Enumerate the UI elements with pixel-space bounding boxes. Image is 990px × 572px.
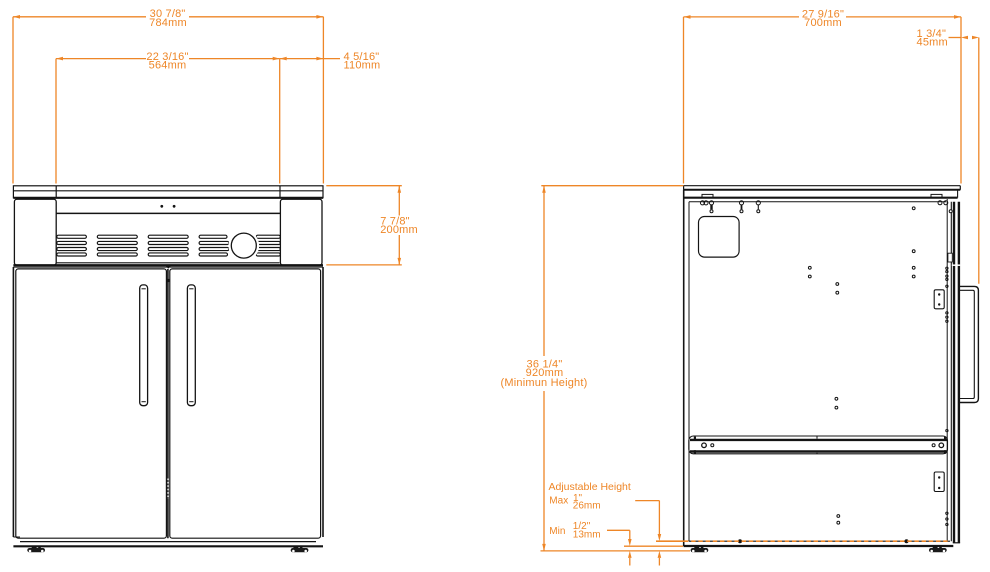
svg-text:700mm: 700mm (804, 17, 842, 29)
svg-text:45mm: 45mm (917, 37, 948, 49)
svg-text:110mm: 110mm (344, 59, 381, 71)
svg-text:Adjustable Height: Adjustable Height (549, 481, 631, 493)
svg-text:200mm: 200mm (380, 224, 418, 236)
svg-text:564mm: 564mm (149, 60, 187, 72)
svg-text:784mm: 784mm (149, 17, 187, 29)
svg-text:Max: Max (549, 496, 568, 507)
svg-text:(Minimun Height): (Minimun Height) (501, 377, 588, 389)
svg-text:26mm: 26mm (573, 500, 601, 511)
svg-text:Min: Min (549, 526, 565, 537)
svg-text:13mm: 13mm (573, 529, 601, 540)
